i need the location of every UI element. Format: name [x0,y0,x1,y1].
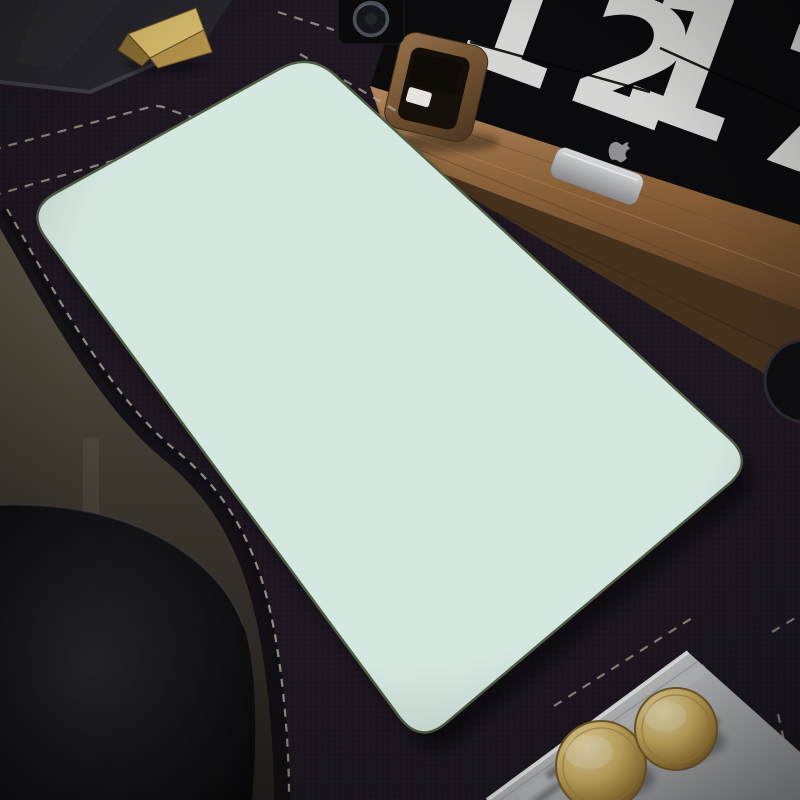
photo-vignette [0,0,800,800]
scene-canvas: 12 17 [0,0,800,800]
desk-scene-photo: 12 17 [0,0,800,800]
